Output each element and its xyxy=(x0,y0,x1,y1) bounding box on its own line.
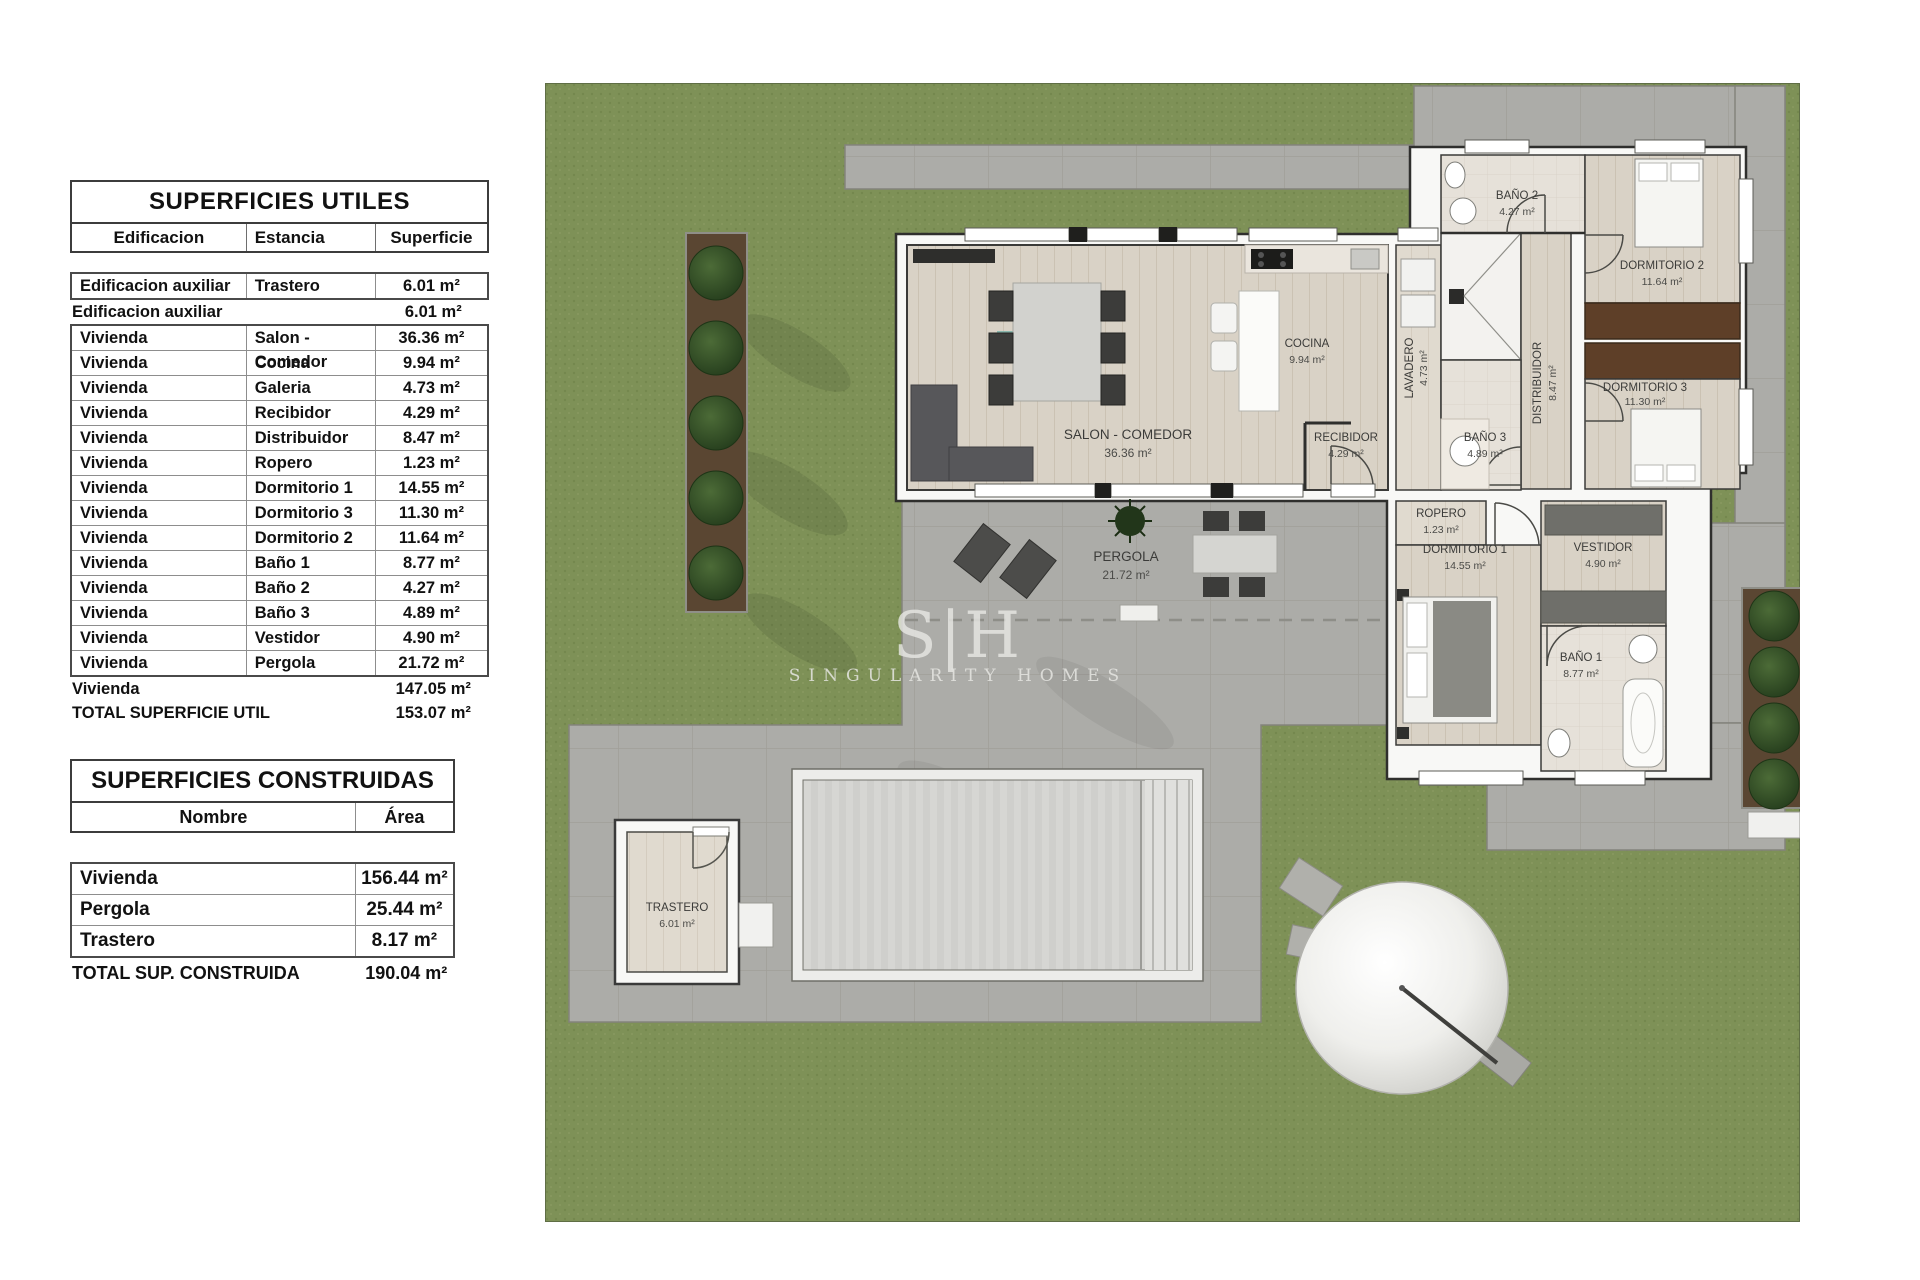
label-vestidor: VESTIDOR xyxy=(1574,542,1633,554)
header-superficie: Superficie xyxy=(375,224,487,251)
spacer xyxy=(70,253,489,272)
wardrobe xyxy=(1585,343,1740,379)
tree xyxy=(1749,703,1799,753)
subtotal-value: 6.01 m² xyxy=(378,300,489,324)
tree xyxy=(689,471,743,525)
header-area: Área xyxy=(355,803,453,831)
total-value: 190.04 m² xyxy=(358,958,455,988)
cell-edificacion: Vivienda xyxy=(72,551,246,575)
cell-superficie: 11.64 m² xyxy=(375,526,487,550)
subtotal-label: Edificacion auxiliar xyxy=(70,300,378,324)
area-bano2: 4.27 m² xyxy=(1499,206,1535,218)
cell-edificacion: Vivienda xyxy=(72,376,246,400)
total-row: TOTAL SUPERFICIE UTIL 153.07 m² xyxy=(70,701,489,725)
cell-edificacion: Vivienda xyxy=(72,526,246,550)
total-label: TOTAL SUPERFICIE UTIL xyxy=(70,701,378,725)
label-bano1: BAÑO 1 xyxy=(1560,651,1602,664)
area-dormitorio1: 14.55 m² xyxy=(1444,560,1486,572)
label-trastero: TRASTERO xyxy=(646,902,709,914)
site-plan: S|H SINGULARITY HOMES SALON - COMEDOR 36… xyxy=(545,83,1800,1222)
area-bano1: 8.77 m² xyxy=(1563,668,1599,680)
washer xyxy=(1401,295,1435,327)
area-distribuidor: 8.47 m² xyxy=(1547,365,1559,401)
cell-edificacion: Vivienda xyxy=(72,501,246,525)
table-row: ViviendaDormitorio 311.30 m² xyxy=(72,500,487,525)
area-salon: 36.36 m² xyxy=(1104,446,1151,460)
label-cocina: COCINA xyxy=(1285,338,1330,350)
watermark-name: SINGULARITY HOMES xyxy=(789,666,1127,686)
cell-estancia: Cocina xyxy=(246,351,375,375)
label-ropero: ROPERO xyxy=(1416,508,1466,520)
table-row: ViviendaGaleria4.73 m² xyxy=(72,375,487,400)
area-pergola: 21.72 m² xyxy=(1102,568,1149,582)
kitchen-island xyxy=(1239,291,1279,411)
watermark-logo: S|H xyxy=(893,599,1023,673)
table-title: SUPERFICIES CONSTRUIDAS xyxy=(70,759,455,803)
spacer xyxy=(70,833,455,862)
washer xyxy=(1401,259,1435,291)
superficies-utiles-table: SUPERFICIES UTILES Edificacion Estancia … xyxy=(70,180,489,725)
outdoor-table xyxy=(1193,535,1277,573)
vestidor-wardrobe xyxy=(1541,591,1666,623)
table-row: ViviendaSalon - Comedor36.36 m² xyxy=(72,326,487,350)
bano1-sink xyxy=(1629,635,1657,663)
cell-estancia: Baño 3 xyxy=(246,601,375,625)
sofa xyxy=(949,447,1033,481)
table-row: ViviendaBaño 18.77 m² xyxy=(72,550,487,575)
cell-estancia: Distribuidor xyxy=(246,426,375,450)
cell-superficie: 4.27 m² xyxy=(375,576,487,600)
cell-nombre: Vivienda xyxy=(72,864,355,894)
table-row: Vivienda156.44 m² xyxy=(72,864,453,894)
area-lavadero: 4.73 m² xyxy=(1418,350,1430,386)
cell-estancia: Dormitorio 3 xyxy=(246,501,375,525)
cell-estancia: Dormitorio 2 xyxy=(246,526,375,550)
stool xyxy=(1211,303,1237,333)
cell-estancia: Pergola xyxy=(246,651,375,675)
table-title: SUPERFICIES UTILES xyxy=(70,180,489,224)
tree xyxy=(1749,591,1799,641)
tree xyxy=(689,321,743,375)
cell-edificacion: Vivienda xyxy=(72,326,246,350)
table-row: Trastero8.17 m² xyxy=(72,925,453,956)
cell-superficie: 4.73 m² xyxy=(375,376,487,400)
label-distribuidor: DISTRIBUIDOR xyxy=(1532,342,1544,424)
header-estancia: Estancia xyxy=(246,224,375,251)
label-dormitorio1: DORMITORIO 1 xyxy=(1423,544,1507,556)
cell-estancia: Trastero xyxy=(246,274,375,298)
table-row: ViviendaRecibidor4.29 m² xyxy=(72,400,487,425)
label-dormitorio3: DORMITORIO 3 xyxy=(1603,382,1687,394)
area-bano3: 4.89 m² xyxy=(1467,448,1503,460)
tv-unit xyxy=(913,249,995,263)
cell-area: 25.44 m² xyxy=(355,895,453,925)
cooktop xyxy=(1251,249,1293,269)
table-row: ViviendaRopero1.23 m² xyxy=(72,450,487,475)
vivienda-total-value: 147.05 m² xyxy=(378,677,489,701)
bed-dormitorio3 xyxy=(1631,409,1701,487)
label-pergola: PERGOLA xyxy=(1093,549,1158,564)
cell-edificacion: Vivienda xyxy=(72,576,246,600)
cell-edificacion: Vivienda xyxy=(72,451,246,475)
room-distribuidor xyxy=(1521,233,1571,489)
construidas-block: Vivienda156.44 m² Pergola25.44 m² Traste… xyxy=(70,862,455,958)
wardrobe xyxy=(1585,303,1740,339)
bano2-sink xyxy=(1450,198,1476,224)
tree xyxy=(689,246,743,300)
total-row: TOTAL SUP. CONSTRUIDA 190.04 m² xyxy=(70,958,455,988)
label-salon: SALON - COMEDOR xyxy=(1064,427,1193,442)
subtotal-row: Edificacion auxiliar 6.01 m² xyxy=(70,300,489,324)
cell-estancia: Recibidor xyxy=(246,401,375,425)
table-row: ViviendaVestidor4.90 m² xyxy=(72,625,487,650)
tree xyxy=(689,546,743,600)
cell-edificacion: Vivienda xyxy=(72,401,246,425)
label-dormitorio2: DORMITORIO 2 xyxy=(1620,260,1704,272)
superficies-construidas-table: SUPERFICIES CONSTRUIDAS Nombre Área Vivi… xyxy=(70,759,455,988)
trastero-pad xyxy=(739,903,773,947)
duvet xyxy=(1433,601,1491,717)
table-row: ViviendaDormitorio 114.55 m² xyxy=(72,475,487,500)
cell-edificacion: Vivienda xyxy=(72,426,246,450)
cell-nombre: Pergola xyxy=(72,895,355,925)
cell-superficie: 8.47 m² xyxy=(375,426,487,450)
cell-area: 156.44 m² xyxy=(355,864,453,894)
table-row: Edificacion auxiliar Trastero 6.01 m² xyxy=(72,274,487,298)
pool-water xyxy=(803,780,1192,970)
area-trastero: 6.01 m² xyxy=(659,918,695,930)
area-vestidor: 4.90 m² xyxy=(1585,558,1621,570)
right-planter xyxy=(1742,588,1800,838)
label-lavadero: LAVADERO xyxy=(1404,337,1416,398)
cell-nombre: Trastero xyxy=(72,926,355,956)
cell-edificacion: Edificacion auxiliar xyxy=(72,274,246,298)
trastero-block: Edificacion auxiliar Trastero 6.01 m² xyxy=(70,272,489,300)
cell-superficie: 14.55 m² xyxy=(375,476,487,500)
header-nombre: Nombre xyxy=(72,803,355,831)
table-row: ViviendaDormitorio 211.64 m² xyxy=(72,525,487,550)
vestidor-wardrobe xyxy=(1545,505,1662,535)
vivienda-total-row: Vivienda 147.05 m² xyxy=(70,677,489,701)
cell-estancia: Baño 1 xyxy=(246,551,375,575)
bano2-toilet xyxy=(1445,162,1465,188)
bed-dormitorio2 xyxy=(1635,159,1703,247)
stool xyxy=(1211,341,1237,371)
cell-superficie: 4.90 m² xyxy=(375,626,487,650)
table-row: ViviendaCocina9.94 m² xyxy=(72,350,487,375)
table-row: ViviendaBaño 34.89 m² xyxy=(72,600,487,625)
kitchen-sink xyxy=(1351,249,1379,269)
cell-superficie: 11.30 m² xyxy=(375,501,487,525)
cell-area: 8.17 m² xyxy=(355,926,453,956)
cell-superficie: 8.77 m² xyxy=(375,551,487,575)
cell-superficie: 6.01 m² xyxy=(375,274,487,298)
cell-superficie: 4.89 m² xyxy=(375,601,487,625)
label-recibidor: RECIBIDOR xyxy=(1314,432,1378,444)
area-cocina: 9.94 m² xyxy=(1289,354,1325,366)
total-label: TOTAL SUP. CONSTRUIDA xyxy=(70,958,358,988)
cell-estancia: Galeria xyxy=(246,376,375,400)
bathtub xyxy=(1623,679,1663,767)
table-row: ViviendaBaño 24.27 m² xyxy=(72,575,487,600)
left-planter xyxy=(686,233,747,612)
cell-estancia: Vestidor xyxy=(246,626,375,650)
cell-edificacion: Vivienda xyxy=(72,601,246,625)
swimming-pool xyxy=(792,769,1203,981)
cell-superficie: 1.23 m² xyxy=(375,451,487,475)
cell-superficie: 21.72 m² xyxy=(375,651,487,675)
cell-superficie: 9.94 m² xyxy=(375,351,487,375)
area-dormitorio3: 11.30 m² xyxy=(1625,396,1666,408)
cell-superficie: 4.29 m² xyxy=(375,401,487,425)
cell-estancia: Dormitorio 1 xyxy=(246,476,375,500)
bano1-toilet xyxy=(1548,729,1570,757)
total-value: 153.07 m² xyxy=(378,701,489,725)
label-bano2: BAÑO 2 xyxy=(1496,189,1538,202)
vivienda-block: ViviendaSalon - Comedor36.36 m² Vivienda… xyxy=(70,324,489,677)
cell-edificacion: Vivienda xyxy=(72,626,246,650)
step-pad xyxy=(1120,605,1158,621)
cell-edificacion: Vivienda xyxy=(72,476,246,500)
vivienda-total-label: Vivienda xyxy=(70,677,378,701)
cell-estancia: Salon - Comedor xyxy=(246,326,375,350)
table-header-row: Edificacion Estancia Superficie xyxy=(70,224,489,253)
tree xyxy=(1749,647,1799,697)
trastero-door-opening xyxy=(693,827,729,836)
cell-estancia: Baño 2 xyxy=(246,576,375,600)
planter-pad xyxy=(1748,812,1800,838)
table-header-row: Nombre Área xyxy=(70,803,455,833)
tree xyxy=(1749,759,1799,809)
table-row: Pergola25.44 m² xyxy=(72,894,453,925)
header-edificacion: Edificacion xyxy=(72,224,246,251)
area-dormitorio2: 11.64 m² xyxy=(1642,276,1683,288)
cell-estancia: Ropero xyxy=(246,451,375,475)
area-recibidor: 4.29 m² xyxy=(1328,448,1364,460)
floor-plan-svg: S|H SINGULARITY HOMES SALON - COMEDOR 36… xyxy=(545,83,1800,1222)
area-ropero: 1.23 m² xyxy=(1423,524,1459,536)
bed-dormitorio1 xyxy=(1397,589,1497,739)
cell-superficie: 36.36 m² xyxy=(375,326,487,350)
cell-edificacion: Vivienda xyxy=(72,651,246,675)
cell-edificacion: Vivienda xyxy=(72,351,246,375)
tree xyxy=(689,396,743,450)
label-bano3: BAÑO 3 xyxy=(1464,431,1506,444)
table-row: ViviendaPergola21.72 m² xyxy=(72,650,487,675)
dining-table xyxy=(1013,283,1101,401)
table-row: ViviendaDistribuidor8.47 m² xyxy=(72,425,487,450)
